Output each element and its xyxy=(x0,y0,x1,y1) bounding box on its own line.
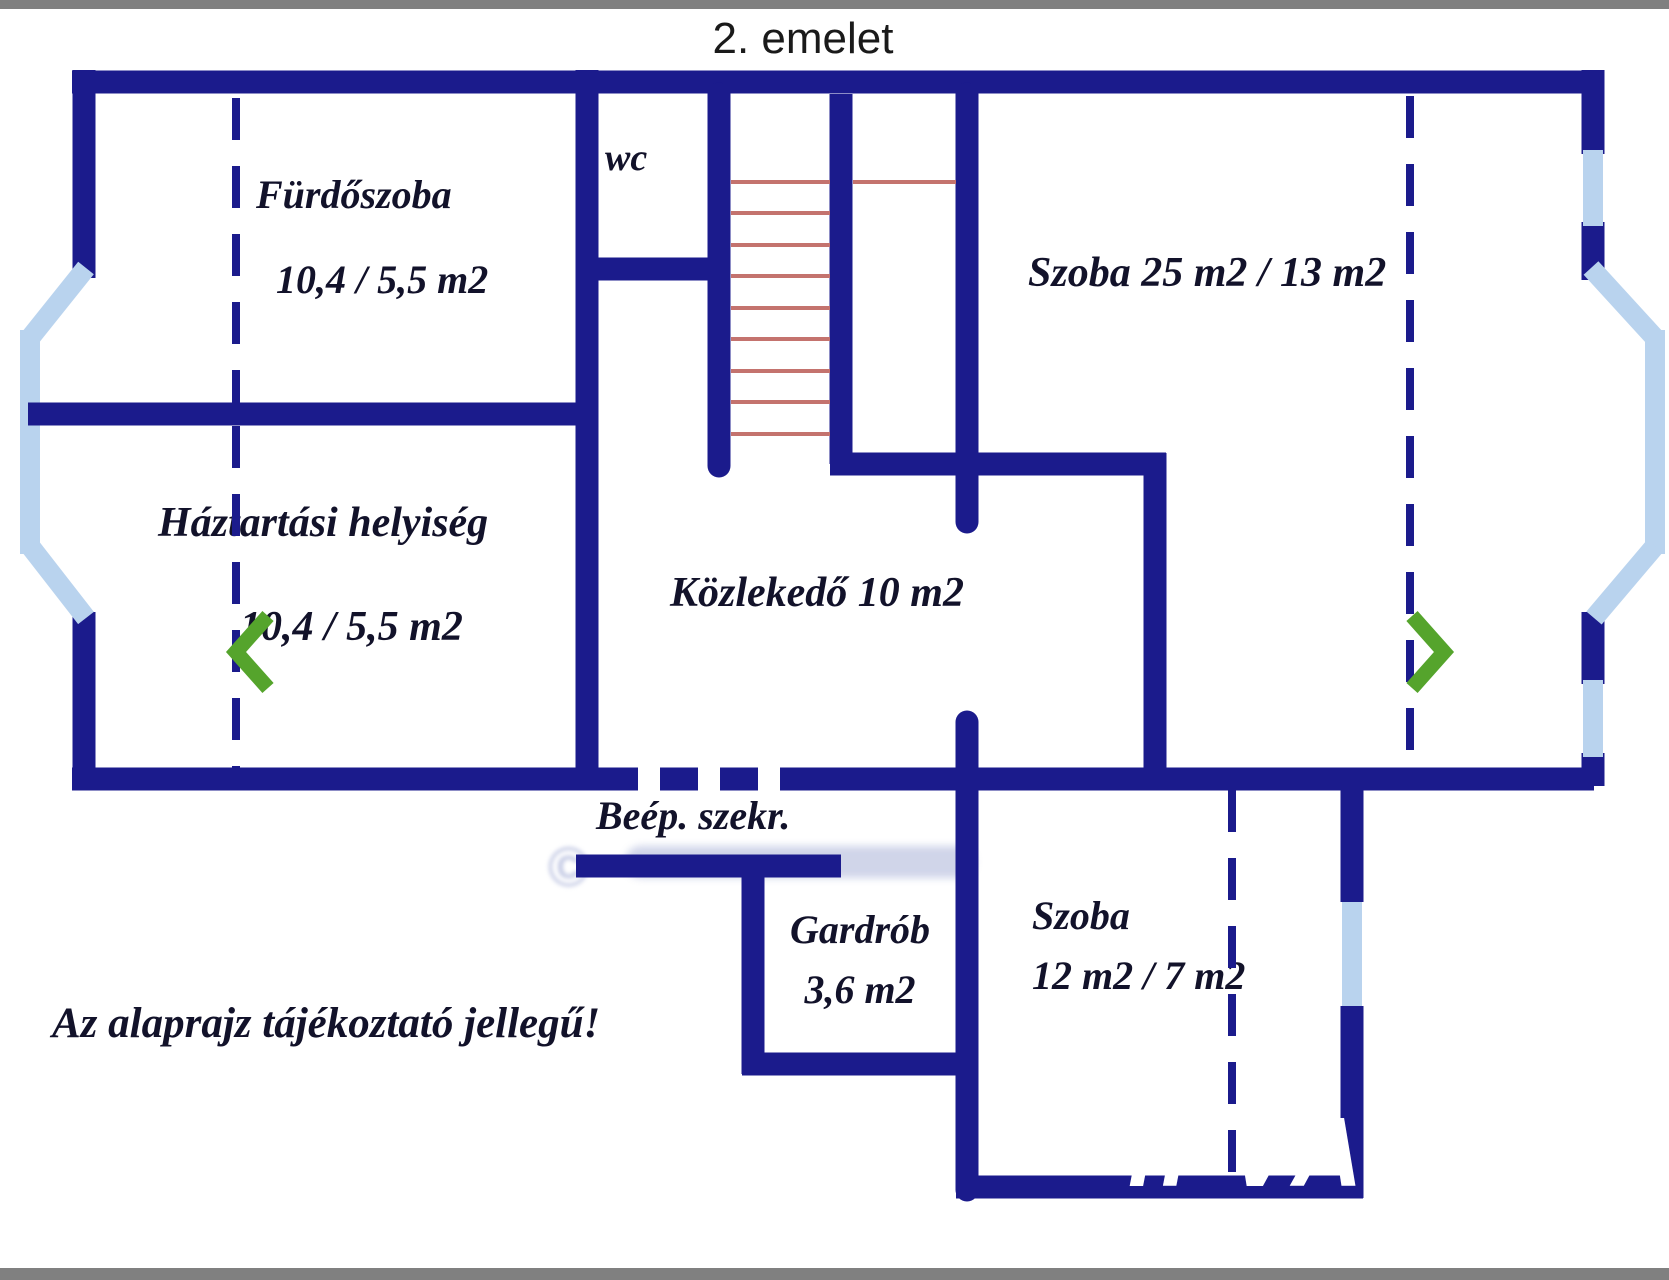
bay-window-left xyxy=(30,268,86,618)
prev-image-button[interactable] xyxy=(222,606,282,702)
room-label-beep-szekreny: Beép. szekr. xyxy=(596,786,790,846)
copyright-watermark: © xyxy=(548,834,589,899)
room-label-furdoszoba: Fürdőszoba xyxy=(256,165,452,225)
room-label-szoba25: Szoba 25 m2 / 13 m2 xyxy=(1028,242,1386,305)
staircase xyxy=(731,182,956,434)
room-area-furdoszoba: 10,4 / 5,5 m2 xyxy=(276,250,488,310)
floorplan-page: 2. emelet xyxy=(0,0,1669,1280)
room-label-szoba12-name: Szoba xyxy=(1032,886,1245,946)
room-label-gardrob: Gardrób 3,6 m2 xyxy=(740,900,980,1020)
bottom-frame-bar xyxy=(0,1268,1669,1280)
chevron-left-icon xyxy=(236,616,268,688)
room-area-szoba12: 12 m2 / 7 m2 xyxy=(1032,946,1245,1006)
corner-watermark: il VA xyxy=(1128,1096,1369,1209)
top-frame-bar xyxy=(0,0,1669,9)
room-label-wc: wc xyxy=(605,130,647,187)
room-label-haztartasi: Háztartási helyiség xyxy=(158,492,488,555)
chevron-right-icon xyxy=(1412,616,1444,688)
floor-title: 2. emelet xyxy=(603,14,1003,64)
room-label-szoba12: Szoba 12 m2 / 7 m2 xyxy=(1032,886,1245,1006)
room-area-gardrob: 3,6 m2 xyxy=(740,960,980,1020)
room-label-gardrob-name: Gardrób xyxy=(740,900,980,960)
bay-window-right xyxy=(1591,268,1655,618)
wall-windows xyxy=(1352,150,1593,1010)
next-image-button[interactable] xyxy=(1398,606,1458,702)
room-label-kozlekedo: Közlekedő 10 m2 xyxy=(670,562,964,625)
disclaimer-note: Az alaprajz tájékoztató jellegű! xyxy=(52,992,600,1057)
watermark-blur-bar xyxy=(625,846,975,878)
